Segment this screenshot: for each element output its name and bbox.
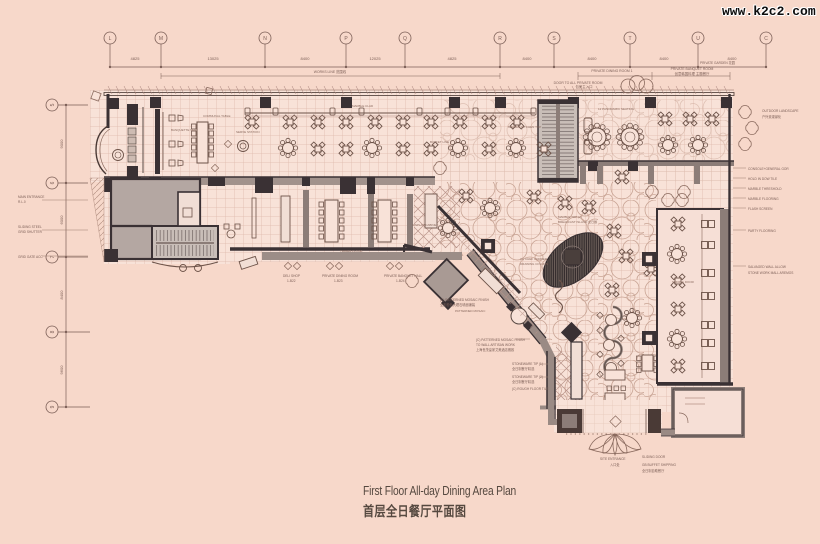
svg-text:SERVE STATION: SERVE STATION (236, 130, 260, 134)
svg-text:8400: 8400 (588, 56, 598, 61)
svg-text:MAIN ENTRANCE: MAIN ENTRANCE (18, 195, 44, 199)
svg-text:R.L.0: R.L.0 (18, 200, 26, 204)
svg-text:上海世茂皇家艾美酒店雅致: 上海世茂皇家艾美酒店雅致 (476, 347, 515, 352)
svg-text:SLIDING DOOR: SLIDING DOOR (672, 280, 695, 284)
svg-text:Q: Q (403, 36, 407, 42)
svg-text:12 PANORAMIC SEATING: 12 PANORAMIC SEATING (598, 107, 635, 111)
svg-text:(C) CHEF CORNER: (C) CHEF CORNER (520, 257, 548, 261)
svg-text:DELI SHOP: DELI SHOP (283, 274, 300, 278)
svg-text:8400: 8400 (660, 56, 670, 61)
svg-text:STONEWARE TIP (1): STONEWARE TIP (1) (512, 362, 543, 366)
svg-text:9600: 9600 (59, 365, 64, 375)
svg-text:12025: 12025 (369, 56, 381, 61)
svg-text:6: 6 (50, 181, 56, 184)
svg-text:8400: 8400 (301, 56, 311, 61)
svg-text:N: N (263, 36, 267, 42)
svg-text:SLIDING STEEL: SLIDING STEEL (18, 225, 42, 229)
svg-text:全日制餐厅精选: 全日制餐厅精选 (512, 379, 535, 384)
svg-text:BREAKFAST ISLAND 全日餐: BREAKFAST ISLAND 全日餐 (558, 219, 597, 224)
svg-text:4825: 4825 (448, 56, 458, 61)
svg-text:STONE WORK MALL AREMOS: STONE WORK MALL AREMOS (748, 271, 793, 275)
svg-text:PRIVATE DINING ROOM: PRIVATE DINING ROOM (322, 274, 358, 278)
svg-text:创意韩国料理 主题餐厅: 创意韩国料理 主题餐厅 (675, 71, 710, 76)
svg-text:T: T (628, 36, 631, 42)
svg-text:6000: 6000 (59, 215, 64, 225)
svg-text:STONEWARE TIP (2): STONEWARE TIP (2) (512, 375, 543, 379)
svg-text:1-B23: 1-B23 (334, 279, 343, 283)
svg-text:MARBLE FLOORING: MARBLE FLOORING (748, 197, 779, 201)
svg-text:L: L (109, 36, 112, 42)
svg-text:WORKS LINE 范围线: WORKS LINE 范围线 (314, 69, 347, 74)
svg-text:PRIVATE DINING ROOM 1: PRIVATE DINING ROOM 1 (591, 69, 632, 73)
svg-text:9: 9 (50, 405, 56, 408)
svg-text:OUTDOOR LANDSCAPE: OUTDOOR LANDSCAPE (762, 109, 799, 113)
svg-text:全日制自助餐厅: 全日制自助餐厅 (642, 468, 665, 473)
svg-text:R: R (498, 36, 502, 42)
svg-text:BANQUETTE SEAT: BANQUETTE SEAT (171, 128, 198, 132)
svg-text:MARBLE KITCHEN TOP: MARBLE KITCHEN TOP (508, 125, 541, 129)
svg-text:SALVAGED WALL ALLOW: SALVAGED WALL ALLOW (748, 265, 786, 269)
svg-text:4825: 4825 (131, 56, 141, 61)
svg-text:入口处: 入口处 (610, 462, 620, 467)
svg-text:DRAWING COLUMN: DRAWING COLUMN (520, 262, 548, 266)
svg-text:户外景观绿化: 户外景观绿化 (762, 114, 782, 119)
svg-text:MARBLE CLAD: MARBLE CLAD (352, 104, 374, 108)
svg-text:8400: 8400 (59, 290, 64, 300)
svg-text:PRIVATE BANQUET ROOM: PRIVATE BANQUET ROOM (671, 67, 714, 71)
svg-text:PRIVATE GARDEN 花园: PRIVATE GARDEN 花园 (700, 60, 735, 65)
svg-text:HOLD IN DOW TILE: HOLD IN DOW TILE (748, 177, 777, 181)
svg-text:MARBLE THRESHOLD: MARBLE THRESHOLD (748, 187, 782, 191)
svg-text:9000: 9000 (59, 139, 64, 149)
svg-text:COMMUNAL TABLE: COMMUNAL TABLE (203, 114, 230, 118)
svg-text:8400: 8400 (523, 56, 533, 61)
svg-text:CONSOLE+GENERAL GOR: CONSOLE+GENERAL GOR (748, 167, 789, 171)
svg-text:DISPLAY CABINET: DISPLAY CABINET (412, 223, 438, 227)
svg-text:U: U (696, 36, 700, 42)
svg-text:FLASH SCREEN: FLASH SCREEN (748, 207, 773, 211)
svg-text:(C) PATTERNED MOSAIC FINISH: (C) PATTERNED MOSAIC FINISH (440, 298, 490, 302)
svg-text:全天粉色大理石墙面铺装: 全天粉色大理石墙面铺装 (440, 302, 476, 307)
svg-text:(C) ROUGH FLOOR TILE: (C) ROUGH FLOOR TILE (512, 387, 549, 391)
svg-text:包房主入口: 包房主入口 (576, 84, 593, 89)
svg-text:全日制餐厅精选: 全日制餐厅精选 (512, 366, 535, 371)
svg-text:TO WALL ARTISAN WORK: TO WALL ARTISAN WORK (476, 343, 516, 347)
svg-text:PARTY FLOORING: PARTY FLOORING (748, 229, 776, 233)
svg-text:GB BUFFET SHIPPING: GB BUFFET SHIPPING (642, 463, 676, 467)
svg-text:GRID GATE ACC: GRID GATE ACC (18, 255, 43, 259)
svg-text:M: M (159, 36, 163, 42)
svg-text:SITE ENTRANCE: SITE ENTRANCE (600, 457, 626, 461)
svg-text:SLIDING DOOR: SLIDING DOOR (642, 455, 666, 459)
svg-text:13025: 13025 (207, 56, 219, 61)
svg-text:GRID SHUTTER: GRID SHUTTER (18, 230, 43, 234)
svg-text:C: C (764, 36, 768, 42)
svg-text:MARBLE TOP (2): MARBLE TOP (2) (558, 215, 582, 219)
svg-text:PATTERNED MOSAIC: PATTERNED MOSAIC (455, 309, 486, 313)
svg-text:(C) PATTERNED MOSAIC FINISH: (C) PATTERNED MOSAIC FINISH (476, 338, 526, 342)
svg-text:BUFFET LINE: BUFFET LINE (430, 140, 449, 144)
svg-text:1-B24: 1-B24 (396, 279, 405, 283)
svg-text:8: 8 (50, 330, 56, 333)
svg-text:1-B22: 1-B22 (287, 279, 296, 283)
svg-text:TIMBER FLOOR: TIMBER FLOOR (340, 249, 363, 253)
svg-text:5: 5 (50, 103, 56, 106)
